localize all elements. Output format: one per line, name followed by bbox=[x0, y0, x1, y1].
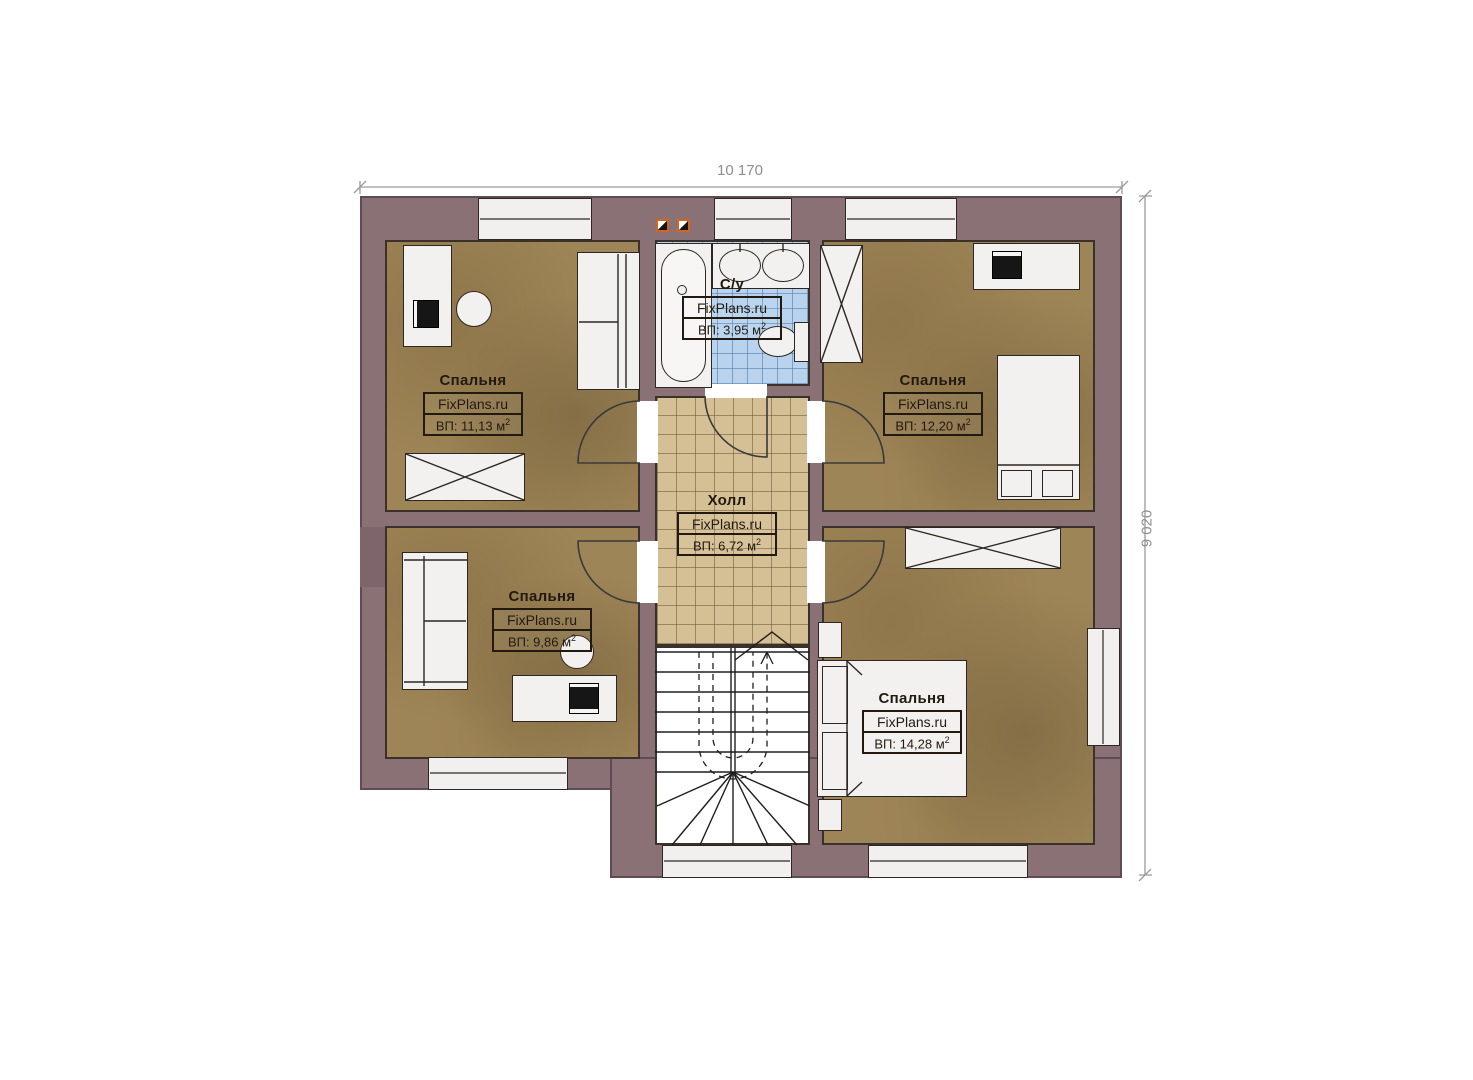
stair-walk-line bbox=[699, 652, 767, 779]
watermark-badge: FixPlans.ru bbox=[684, 298, 780, 319]
area-label: ВП: 9,86 м2 bbox=[494, 631, 590, 650]
floor-plan-canvas: Спальня FixPlans.ru ВП: 11,13 м2 С/у Fix… bbox=[0, 0, 1473, 1080]
watermark-badge: FixPlans.ru bbox=[864, 712, 960, 733]
area-label: ВП: 11,13 м2 bbox=[425, 415, 521, 434]
area-box: FixPlans.ru ВП: 6,72 м2 bbox=[677, 512, 777, 556]
watermark-badge: FixPlans.ru bbox=[494, 610, 590, 631]
dimension-height-label: 9 020 bbox=[1139, 486, 1156, 572]
room-name: Холл bbox=[708, 492, 747, 509]
room-label-hall: Холл FixPlans.ru ВП: 6,72 м2 bbox=[663, 492, 791, 556]
area-label: ВП: 12,20 м2 bbox=[885, 415, 981, 434]
room-label-bedroom-top-left: Спальня FixPlans.ru ВП: 11,13 м2 bbox=[408, 372, 538, 436]
watermark-badge: FixPlans.ru bbox=[425, 394, 521, 415]
area-label: ВП: 3,95 м2 bbox=[684, 319, 780, 338]
room-label-bathroom: С/у FixPlans.ru ВП: 3,95 м2 bbox=[677, 276, 787, 340]
dimension-width-label: 10 170 bbox=[695, 162, 785, 179]
watermark-badge: FixPlans.ru bbox=[679, 514, 775, 535]
watermark-badge: FixPlans.ru bbox=[885, 394, 981, 415]
room-label-bedroom-top-right: Спальня FixPlans.ru ВП: 12,20 м2 bbox=[868, 372, 998, 436]
area-box: FixPlans.ru ВП: 9,86 м2 bbox=[492, 608, 592, 652]
area-label: ВП: 6,72 м2 bbox=[679, 535, 775, 554]
area-box: FixPlans.ru ВП: 11,13 м2 bbox=[423, 392, 523, 436]
room-name: Спальня bbox=[900, 372, 967, 389]
area-box: FixPlans.ru ВП: 12,20 м2 bbox=[883, 392, 983, 436]
room-label-bedroom-bottom-right: Спальня FixPlans.ru ВП: 14,28 м2 bbox=[848, 690, 976, 754]
staircase-lines bbox=[655, 632, 810, 845]
room-name: Спальня bbox=[509, 588, 576, 605]
room-name: Спальня bbox=[440, 372, 507, 389]
room-name: С/у bbox=[720, 276, 744, 293]
area-box: FixPlans.ru ВП: 3,95 м2 bbox=[682, 296, 782, 340]
room-label-bedroom-bottom-left: Спальня FixPlans.ru ВП: 9,86 м2 bbox=[478, 588, 606, 652]
area-label: ВП: 14,28 м2 bbox=[864, 733, 960, 752]
area-box: FixPlans.ru ВП: 14,28 м2 bbox=[862, 710, 962, 754]
room-name: Спальня bbox=[879, 690, 946, 707]
